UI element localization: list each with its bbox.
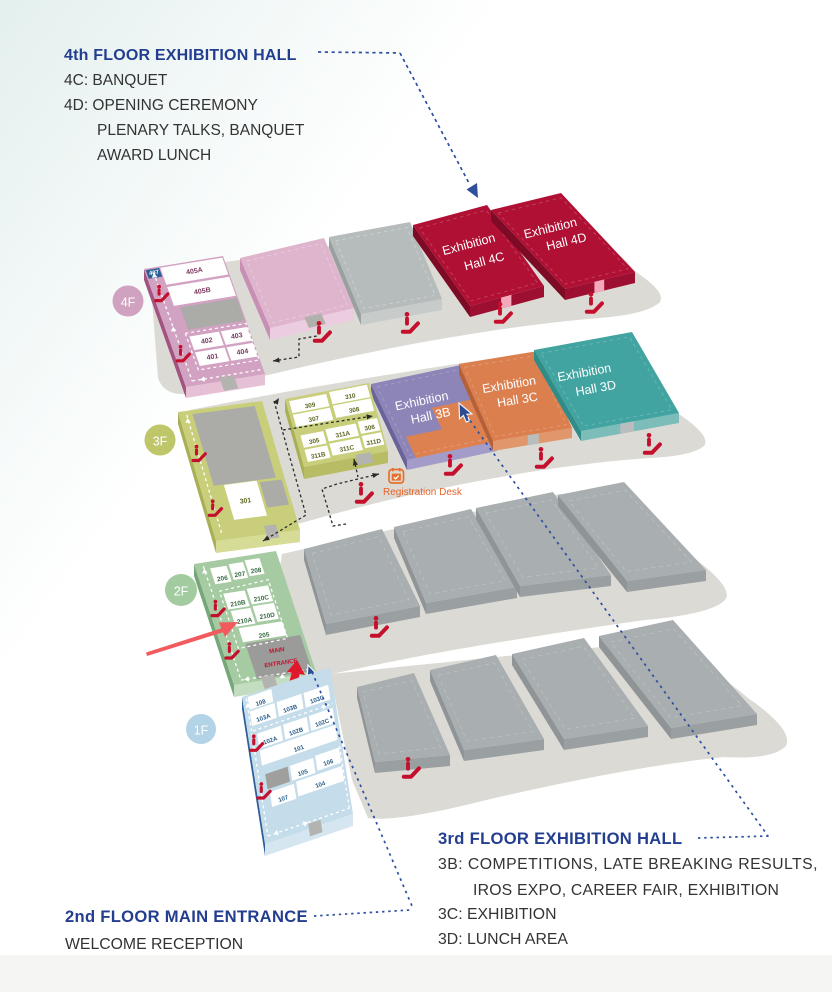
svg-text:3F: 3F xyxy=(153,435,168,449)
svg-text:PLENARY TALKS, BANQUET: PLENARY TALKS, BANQUET xyxy=(97,122,305,139)
svg-text:2nd FLOOR MAIN ENTRANCE: 2nd FLOOR MAIN ENTRANCE xyxy=(65,907,308,926)
svg-text:IROS EXPO, CAREER FAIR, EXHIBI: IROS EXPO, CAREER FAIR, EXHIBITION xyxy=(473,882,779,899)
svg-text:AWARD LUNCH: AWARD LUNCH xyxy=(97,147,211,164)
svg-text:4D: OPENING CEREMONY: 4D: OPENING CEREMONY xyxy=(64,97,258,114)
svg-text:4F: 4F xyxy=(121,296,136,310)
svg-text:4th FLOOR EXHIBITION HALL: 4th FLOOR EXHIBITION HALL xyxy=(64,47,297,64)
svg-text:3B: COMPETITIONS, LATE BREAKIN: 3B: COMPETITIONS, LATE BREAKING RESULTS, xyxy=(438,856,818,873)
svg-text:3rd FLOOR EXHIBITION HALL: 3rd FLOOR EXHIBITION HALL xyxy=(438,829,682,848)
svg-text:3C: EXHIBITION: 3C: EXHIBITION xyxy=(438,906,557,923)
svg-text:Registration Desk: Registration Desk xyxy=(383,487,463,498)
svg-text:2F: 2F xyxy=(174,585,189,599)
svg-text:4C: BANQUET: 4C: BANQUET xyxy=(64,72,168,89)
svg-text:3D: LUNCH AREA: 3D: LUNCH AREA xyxy=(438,931,568,948)
svg-text:WELCOME RECEPTION: WELCOME RECEPTION xyxy=(65,936,243,953)
svg-text:301: 301 xyxy=(240,497,252,505)
svg-text:1F: 1F xyxy=(194,724,209,738)
